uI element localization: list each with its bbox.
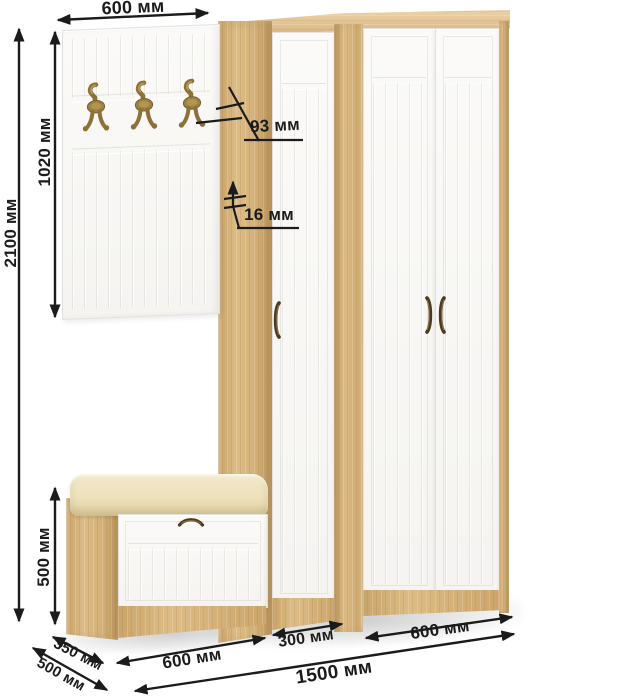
bench-cushion [70, 474, 268, 516]
dim-label-bench-height: 500 мм [34, 511, 54, 603]
dim-label-total-height: 2100 мм [1, 187, 21, 279]
dim-label-hook-projection: 93 мм [247, 115, 304, 138]
dim-label-panel-height: 1020 мм [35, 106, 55, 198]
dim-label-panel-width: 600 мм [93, 0, 174, 20]
bench-handle-icon [177, 516, 205, 527]
bench-flap-door [118, 514, 268, 608]
dim-label-panel-thickness: 16 мм [240, 205, 298, 225]
shoe-bench [0, 0, 630, 700]
product-scene: 600 мм 1020 мм 2100 мм 93 мм 16 мм 500 м… [0, 0, 630, 700]
bench-plinth [118, 606, 266, 638]
door-planks [128, 548, 258, 599]
